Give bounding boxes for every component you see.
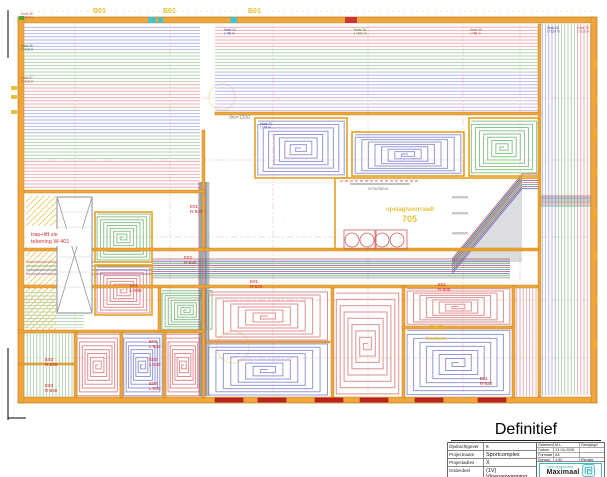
grid-label-b01-1: B01 — [93, 8, 106, 15]
stairwell — [57, 197, 92, 313]
title-block-row: Onderdeel (1V) Vloerverwarming — [448, 467, 536, 477]
title-block-row: Opdrachtgever x — [448, 443, 536, 451]
distributor-code: R-930 — [184, 260, 197, 265]
distributor-code: L-830 — [149, 386, 161, 391]
meta-empty — [580, 453, 604, 457]
company-logo: VloerVerwarming Maximaal — [539, 463, 602, 477]
room-705-name: opslag/voorraad/ — [386, 207, 435, 213]
distributor-code: R-830 — [45, 388, 58, 393]
distributor-code: R-830 — [45, 362, 58, 367]
row-value: (1V) Vloerverwarming — [484, 467, 536, 477]
meta-value: M.L. — [554, 443, 580, 447]
meta-value: 13-04-2006 — [554, 448, 580, 452]
circuit-length: L=96 m — [224, 32, 235, 36]
grid-label-b01-3: B01 — [248, 8, 261, 15]
meta-label: Revisie — [580, 458, 604, 462]
circuit-length: L=120 m — [547, 30, 560, 34]
meta-label: Datum — [537, 448, 554, 452]
circuit-length: L=114 m — [21, 16, 34, 20]
room-705-number: 705 — [402, 214, 417, 224]
dm-note: dm=1200 — [229, 115, 250, 121]
logo-line2: Maximaal — [546, 469, 579, 476]
distributor-code: R-930 — [438, 287, 451, 292]
meta-table: Getekend M.L. Gewijzigd Datum 13-04-2006… — [537, 443, 604, 462]
distributor-code: R-830 — [480, 381, 493, 386]
row-label: Projectnaam — [448, 451, 484, 458]
grid-label-b01-2: B01 — [163, 8, 176, 15]
row-label: Opdrachtgever — [448, 443, 484, 450]
room-707-name: bestuur — [426, 336, 447, 342]
sliding-door-note: schuifdeur — [368, 186, 389, 191]
distributor-code: L-830 — [149, 362, 161, 367]
circuit-length: L=116 m — [577, 30, 590, 34]
watermark-circles — [209, 84, 249, 363]
meta-label: Getekend — [537, 443, 554, 447]
meta-value: A4 — [554, 453, 580, 457]
meta-label: Formaat — [537, 453, 554, 457]
distributor-code: R-930 — [250, 284, 263, 289]
title-block-table: Opdrachtgever x Projectnaam Sportcomplex… — [447, 442, 605, 477]
distributor-code: R-930 — [190, 209, 203, 214]
circuit-length: L=102 m — [354, 32, 367, 36]
meta-empty — [580, 448, 604, 452]
circuit-length: L=110 m — [21, 80, 34, 84]
row-value: Sportcomplex — [484, 451, 536, 458]
meta-label: Gewijzigd — [580, 443, 604, 447]
stair-note-line2: tekening W-401 — [31, 239, 69, 245]
row-label: Projectadres — [448, 459, 484, 466]
circuit-length: L=74 m — [260, 126, 271, 130]
row-value: X — [484, 459, 536, 466]
room-707-number: 707 — [430, 324, 444, 333]
floor-plan: B01 B01 B01 trap+lift zie tekening W-401… — [0, 0, 607, 477]
drawing-sheet: B01 B01 B01 trap+lift zie tekening W-401… — [0, 0, 607, 477]
row-value: x — [484, 443, 536, 450]
title-block: Definitief Opdrachtgever x Projectnaam S… — [447, 422, 605, 477]
title-block-row: Projectadres X — [448, 459, 536, 467]
distributor-code: L-930 — [130, 288, 142, 293]
distributor-code: L-830 — [149, 344, 161, 349]
stair-note-line1: trap+lift zie — [31, 232, 58, 238]
drawing-status-title: Definitief — [451, 422, 601, 441]
row-label: Onderdeel — [448, 467, 484, 477]
spiral-logo-icon — [582, 464, 595, 477]
title-block-row: Projectnaam Sportcomplex — [448, 451, 536, 459]
meta-value: 1:50 — [554, 458, 580, 462]
storage-hatch — [26, 196, 56, 330]
circuit-length: L=118 m — [21, 48, 34, 52]
circuit-length: L=88 m — [470, 32, 481, 36]
meta-label: Schaal — [537, 458, 554, 462]
